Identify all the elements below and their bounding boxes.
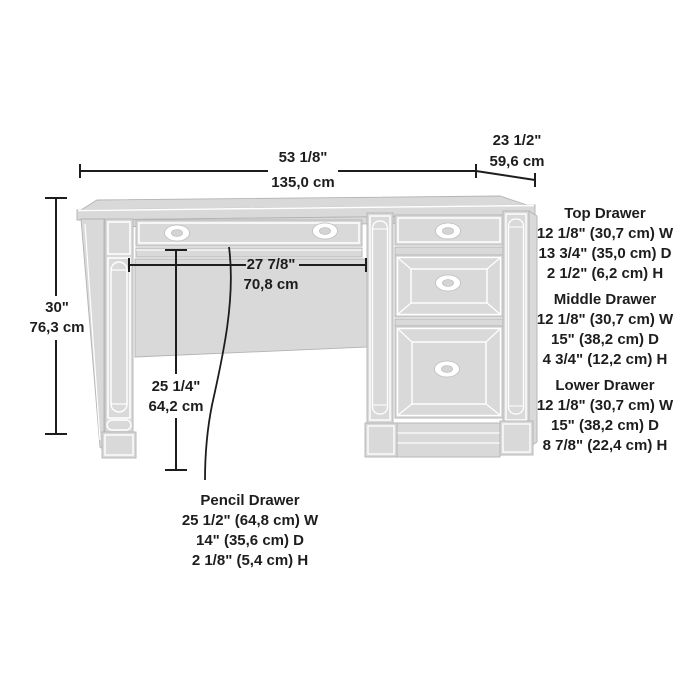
spec-line: 13 3/4" (35,0 cm) D [537,244,673,264]
width-dimension-label: 53 1/8" 135,0 cm [271,145,334,195]
spec-line: 25 1/2" (64,8 cm) W [182,511,318,531]
pencil-drawer-handle-icon [165,225,190,241]
opening-height-metric: 64,2 cm [148,397,203,417]
pedestal-base [365,421,533,457]
opening-width-metric: 70,8 cm [243,275,298,295]
right-pedestal [365,211,537,457]
spec-line: 4 3/4" (12,2 cm) H [537,350,673,370]
pencil-drawer-handle-icon [313,223,338,239]
top-drawer-specs: Top Drawer 12 1/8" (30,7 cm) W 13 3/4" (… [537,204,673,284]
depth-dimension-line [476,171,535,187]
lower-drawer-specs: Lower Drawer 12 1/8" (30,7 cm) W 15" (38… [537,376,673,456]
desk-left-leg [102,219,136,458]
spec-line: 2 1/2" (6,2 cm) H [537,264,673,284]
spec-title: Top Drawer [537,204,673,224]
pedestal-right-side [529,211,537,447]
opening-height-inches: 25 1/4" [148,377,203,397]
width-metric: 135,0 cm [271,170,334,195]
spec-title: Pencil Drawer [182,491,318,511]
spec-line: 15" (38,2 cm) D [537,330,673,350]
height-dimension-label: 30" 76,3 cm [29,298,84,338]
desk-illustration [77,196,537,458]
opening-width-dimension-label: 27 7/8" 70,8 cm [243,255,298,295]
middle-drawer-specs: Middle Drawer 12 1/8" (30,7 cm) W 15" (3… [537,290,673,370]
spec-title: Middle Drawer [537,290,673,310]
lower-drawer-handle-icon [435,361,460,377]
spec-line: 8 7/8" (22,4 cm) H [537,436,673,456]
spec-line: 12 1/8" (30,7 cm) W [537,396,673,416]
middle-drawer-handle-icon [436,275,461,291]
top-drawer-handle-icon [436,223,461,239]
depth-inches: 23 1/2" [489,130,544,151]
spec-line: 12 1/8" (30,7 cm) W [537,224,673,244]
spec-line: 14" (35,6 cm) D [182,531,318,551]
spec-line: 15" (38,2 cm) D [537,416,673,436]
spec-title: Lower Drawer [537,376,673,396]
spec-line: 12 1/8" (30,7 cm) W [537,310,673,330]
opening-width-inches: 27 7/8" [243,255,298,275]
opening-height-dimension-label: 25 1/4" 64,2 cm [148,377,203,417]
drawer-specs-column: Top Drawer 12 1/8" (30,7 cm) W 13 3/4" (… [537,204,673,462]
depth-dimension-label: 23 1/2" 59,6 cm [489,130,544,172]
product-dimension-diagram: 53 1/8" 135,0 cm 23 1/2" 59,6 cm 30" 76,… [0,0,700,700]
height-inches: 30" [29,298,84,318]
spec-line: 2 1/8" (5,4 cm) H [182,551,318,571]
depth-metric: 59,6 cm [489,151,544,172]
height-metric: 76,3 cm [29,318,84,338]
pencil-drawer-specs: Pencil Drawer 25 1/2" (64,8 cm) W 14" (3… [182,491,318,577]
width-inches: 53 1/8" [271,145,334,170]
